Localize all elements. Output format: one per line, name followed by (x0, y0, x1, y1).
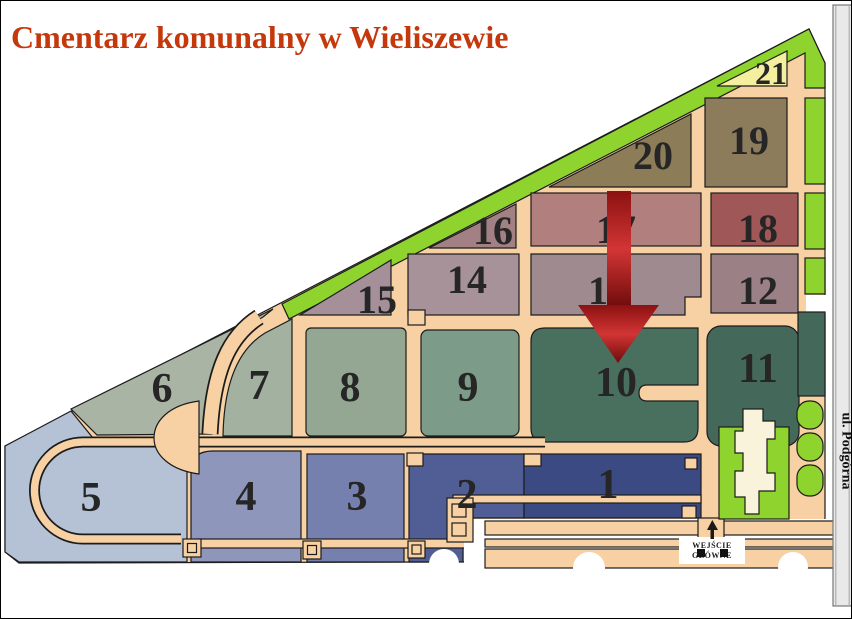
gate-icon (720, 549, 728, 557)
section-21-label: 21 (755, 55, 787, 91)
section-18-label: 18 (738, 206, 778, 251)
entrance-label-line1: WEJŚCIE (692, 540, 732, 550)
section-7-label: 7 (249, 363, 270, 409)
path-bottom (197, 539, 469, 548)
edge-gap (806, 295, 827, 314)
section-2-label: 2 (457, 472, 478, 518)
section-11-label: 11 (738, 346, 778, 392)
section-5-label: 5 (81, 475, 102, 521)
section-4-label: 4 (236, 474, 257, 520)
section-14-label: 14 (447, 257, 487, 302)
cemetery-map-page: WEJŚCIE GŁÓWNE 1 2 (0, 0, 852, 619)
page-title: Cmentarz komunalny w Wieliszewie (11, 19, 508, 56)
section-19-label: 19 (729, 118, 769, 163)
section-1-label: 1 (598, 462, 619, 508)
section-20-label: 20 (633, 133, 673, 178)
section-9-label: 9 (458, 365, 479, 411)
section-12-label: 12 (738, 268, 778, 313)
section-8-label: 8 (340, 365, 361, 411)
section-16-label: 16 (473, 208, 513, 253)
path-section1 (453, 495, 701, 503)
street-bar: ul. Podgórna (833, 5, 852, 606)
cemetery-map: WEJŚCIE GŁÓWNE 1 2 (1, 1, 852, 619)
section-10-label: 10 (595, 360, 637, 406)
arch-cut (429, 549, 459, 579)
section-11-east-strip (798, 312, 825, 396)
section-6-label: 6 (152, 366, 173, 412)
green-edge-strips (805, 98, 825, 294)
gate-icon (697, 549, 705, 557)
street-label: ul. Podgórna (839, 412, 852, 489)
arch-cut (778, 552, 808, 582)
section-15-label: 15 (357, 277, 397, 322)
arch-cut (573, 552, 605, 584)
section-3-label: 3 (347, 474, 368, 520)
